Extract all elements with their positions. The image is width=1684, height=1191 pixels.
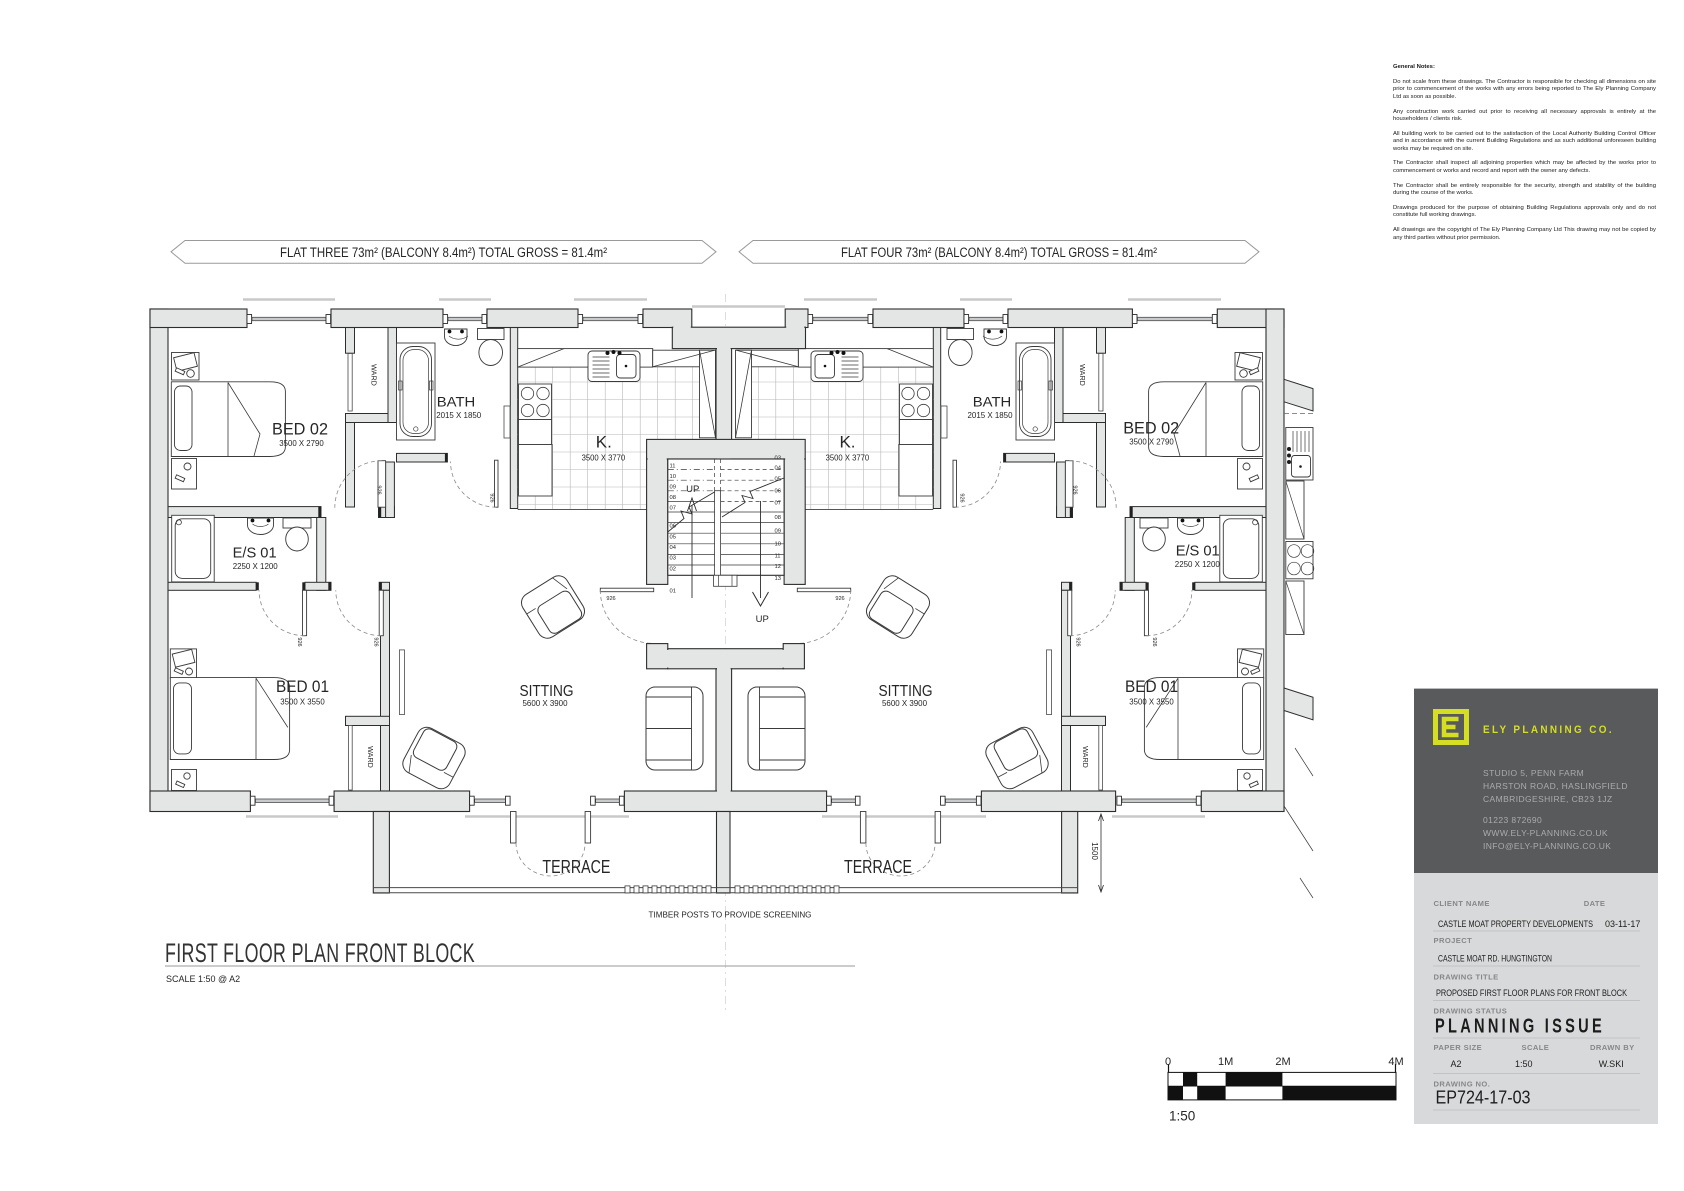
svg-text:DRAWING STATUS: DRAWING STATUS — [1434, 1007, 1508, 1016]
svg-text:3500 X 2790: 3500 X 2790 — [1129, 436, 1174, 446]
svg-text:EP724-17-03: EP724-17-03 — [1436, 1088, 1531, 1108]
svg-text:04: 04 — [670, 545, 677, 551]
svg-text:926: 926 — [1151, 637, 1157, 646]
svg-text:INFO@ELY-PLANNING.CO.UK: INFO@ELY-PLANNING.CO.UK — [1483, 841, 1611, 851]
svg-text:SCALE 1:50 @ A2: SCALE 1:50 @ A2 — [166, 974, 240, 984]
svg-text:UP: UP — [756, 614, 769, 625]
svg-text:09: 09 — [670, 485, 676, 491]
svg-text:08: 08 — [670, 495, 676, 501]
svg-text:TERRACE: TERRACE — [542, 857, 610, 877]
svg-text:10: 10 — [775, 542, 781, 548]
svg-text:2015 X 1850: 2015 X 1850 — [968, 410, 1013, 420]
svg-text:0: 0 — [1165, 1056, 1171, 1068]
svg-text:3500 X 3550: 3500 X 3550 — [280, 697, 325, 707]
svg-text:926: 926 — [376, 485, 382, 494]
svg-text:13: 13 — [775, 576, 781, 582]
svg-text:926: 926 — [606, 596, 615, 602]
svg-text:CASTLE MOAT PROPERTY DEVELOPME: CASTLE MOAT PROPERTY DEVELOPMENTS — [1438, 919, 1593, 929]
svg-text:E/S 01: E/S 01 — [1176, 543, 1220, 560]
svg-text:TIMBER POSTS TO PROVIDE SCREEN: TIMBER POSTS TO PROVIDE SCREENING — [649, 911, 812, 920]
svg-text:03: 03 — [775, 456, 781, 462]
svg-text:BED 01: BED 01 — [1125, 677, 1178, 696]
svg-text:CAMBRIDGESHIRE, CB23 1JZ: CAMBRIDGESHIRE, CB23 1JZ — [1483, 794, 1613, 804]
svg-text:01223 872690: 01223 872690 — [1483, 815, 1542, 825]
svg-text:STUDIO 5, PENN FARM: STUDIO 5, PENN FARM — [1483, 768, 1584, 778]
svg-text:W.SKI: W.SKI — [1599, 1059, 1624, 1069]
svg-text:09: 09 — [775, 529, 781, 535]
svg-text:12: 12 — [775, 564, 781, 570]
svg-text:08: 08 — [775, 515, 781, 521]
svg-text:BATH: BATH — [973, 393, 1012, 409]
svg-text:PLANNING ISSUE: PLANNING ISSUE — [1435, 1016, 1605, 1038]
svg-text:926: 926 — [1072, 485, 1078, 494]
svg-text:BED 01: BED 01 — [276, 677, 329, 696]
svg-text:SCALE: SCALE — [1522, 1043, 1550, 1052]
svg-text:4M: 4M — [1388, 1056, 1403, 1068]
svg-text:FIRST FLOOR PLAN FRONT BLOCK: FIRST FLOOR PLAN FRONT BLOCK — [165, 938, 475, 968]
svg-text:PAPER SIZE: PAPER SIZE — [1434, 1043, 1483, 1052]
svg-text:3500 X 3770: 3500 X 3770 — [582, 452, 626, 462]
svg-text:03: 03 — [670, 556, 676, 562]
svg-text:07: 07 — [775, 501, 781, 507]
svg-text:2250 X 1200: 2250 X 1200 — [233, 561, 278, 571]
svg-text:PROPOSED FIRST FLOOR PLANS FOR: PROPOSED FIRST FLOOR PLANS FOR FRONT BLO… — [1436, 988, 1627, 998]
svg-text:2250 X 1200: 2250 X 1200 — [1175, 559, 1220, 569]
svg-text:DRAWN BY: DRAWN BY — [1590, 1043, 1635, 1052]
svg-text:01: 01 — [670, 589, 676, 595]
svg-text:WARD: WARD — [366, 746, 375, 768]
svg-text:K.: K. — [596, 433, 612, 452]
svg-text:06: 06 — [670, 524, 676, 530]
svg-text:3500 X 3770: 3500 X 3770 — [826, 452, 870, 462]
svg-text:05: 05 — [670, 535, 676, 541]
svg-text:HARSTON ROAD, HASLINGFIELD: HARSTON ROAD, HASLINGFIELD — [1483, 781, 1628, 791]
svg-text:BED 02: BED 02 — [1123, 419, 1179, 438]
svg-text:11: 11 — [775, 554, 781, 560]
svg-text:2M: 2M — [1275, 1056, 1290, 1068]
svg-text:BATH: BATH — [437, 393, 476, 409]
svg-text:926: 926 — [296, 637, 302, 646]
svg-text:07: 07 — [670, 506, 676, 512]
svg-text:CASTLE MOAT RD. HUNGTINGTON: CASTLE MOAT RD. HUNGTINGTON — [1438, 954, 1552, 964]
svg-text:A2: A2 — [1451, 1059, 1462, 1069]
svg-text:1M: 1M — [1218, 1056, 1233, 1068]
svg-text:5600 X 3900: 5600 X 3900 — [523, 698, 568, 708]
svg-text:1500: 1500 — [1090, 842, 1099, 860]
svg-text:3500 X 2790: 3500 X 2790 — [279, 438, 324, 448]
svg-text:926: 926 — [489, 493, 495, 502]
svg-text:5600 X 3900: 5600 X 3900 — [882, 698, 927, 708]
svg-text:E/S 01: E/S 01 — [233, 545, 277, 562]
svg-text:03-11-17: 03-11-17 — [1605, 919, 1640, 929]
svg-text:2015 X 1850: 2015 X 1850 — [436, 410, 481, 420]
svg-text:K.: K. — [839, 433, 855, 452]
svg-text:05: 05 — [775, 477, 781, 483]
svg-text:11: 11 — [670, 464, 676, 470]
svg-text:FLAT THREE 73m² (BALCONY 8.4m²: FLAT THREE 73m² (BALCONY 8.4m²) TOTAL GR… — [280, 245, 607, 260]
svg-text:10: 10 — [670, 474, 676, 480]
svg-text:DATE: DATE — [1584, 899, 1606, 908]
svg-text:CLIENT NAME: CLIENT NAME — [1434, 899, 1490, 908]
svg-text:926: 926 — [835, 596, 844, 602]
svg-text:WARD: WARD — [1081, 746, 1090, 768]
svg-text:926: 926 — [959, 493, 965, 502]
svg-text:TERRACE: TERRACE — [844, 857, 912, 877]
svg-text:WWW.ELY-PLANNING.CO.UK: WWW.ELY-PLANNING.CO.UK — [1483, 828, 1608, 838]
svg-text:1:50: 1:50 — [1169, 1109, 1195, 1124]
svg-text:04: 04 — [775, 466, 782, 472]
svg-text:DRAWING TITLE: DRAWING TITLE — [1434, 973, 1499, 982]
svg-text:BED 02: BED 02 — [272, 420, 328, 439]
svg-text:UP: UP — [686, 484, 699, 495]
svg-text:06: 06 — [775, 489, 781, 495]
svg-text:1:50: 1:50 — [1515, 1059, 1533, 1069]
svg-text:PROJECT: PROJECT — [1434, 936, 1473, 945]
svg-text:926: 926 — [1075, 637, 1081, 646]
svg-text:926: 926 — [373, 637, 379, 646]
svg-text:02: 02 — [670, 567, 676, 573]
svg-text:FLAT FOUR 73m² (BALCONY 8.4m²): FLAT FOUR 73m² (BALCONY 8.4m²) TOTAL GRO… — [841, 245, 1157, 260]
svg-text:WARD: WARD — [370, 364, 379, 386]
svg-text:ELY PLANNING CO.: ELY PLANNING CO. — [1483, 724, 1614, 736]
svg-text:WARD: WARD — [1078, 364, 1087, 386]
svg-text:3500 X 3550: 3500 X 3550 — [1129, 697, 1174, 707]
